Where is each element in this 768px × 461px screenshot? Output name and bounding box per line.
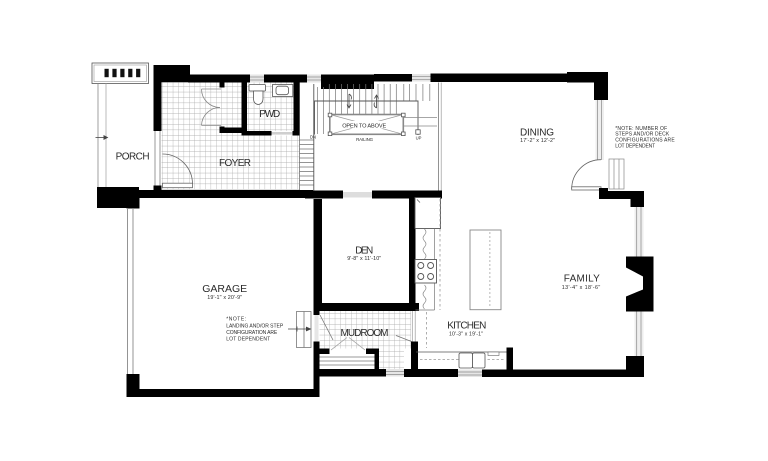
svg-text:19'-1" x 20'-9": 19'-1" x 20'-9" bbox=[207, 295, 242, 301]
svg-text:CONFIGURATIONS ARE: CONFIGURATIONS ARE bbox=[615, 137, 675, 143]
svg-text:UP: UP bbox=[416, 136, 422, 141]
svg-text:PORCH: PORCH bbox=[116, 152, 150, 163]
svg-text:FAMILY: FAMILY bbox=[564, 274, 600, 285]
svg-text:10'-3" x 19'-1": 10'-3" x 19'-1" bbox=[449, 331, 483, 337]
svg-text:RAILING: RAILING bbox=[356, 137, 374, 142]
svg-text:DEN: DEN bbox=[355, 246, 373, 257]
svg-text:GARAGE: GARAGE bbox=[202, 283, 247, 295]
svg-text:17'-2" x 12'-2": 17'-2" x 12'-2" bbox=[520, 138, 555, 144]
svg-text:13'-4" x 18'-6": 13'-4" x 18'-6" bbox=[562, 285, 601, 291]
svg-text:CONFIGURATION ARE: CONFIGURATION ARE bbox=[226, 330, 278, 336]
svg-text:DN: DN bbox=[310, 135, 316, 140]
svg-text:LANDING AND/OR STEP: LANDING AND/OR STEP bbox=[226, 323, 284, 329]
svg-text:*NOTE:: *NOTE: bbox=[226, 317, 246, 323]
svg-text:FOYER: FOYER bbox=[219, 158, 251, 169]
svg-text:LOT DEPENDENT: LOT DEPENDENT bbox=[226, 336, 270, 342]
svg-text:MUDROOM: MUDROOM bbox=[341, 328, 389, 339]
svg-text:OPEN TO ABOVE: OPEN TO ABOVE bbox=[342, 123, 386, 129]
svg-text:LOT DEPENDENT: LOT DEPENDENT bbox=[615, 144, 655, 150]
svg-text:KITCHEN: KITCHEN bbox=[447, 321, 486, 332]
svg-text:PWD: PWD bbox=[259, 109, 280, 120]
svg-text:9'-8" x 11'-10": 9'-8" x 11'-10" bbox=[347, 256, 381, 262]
